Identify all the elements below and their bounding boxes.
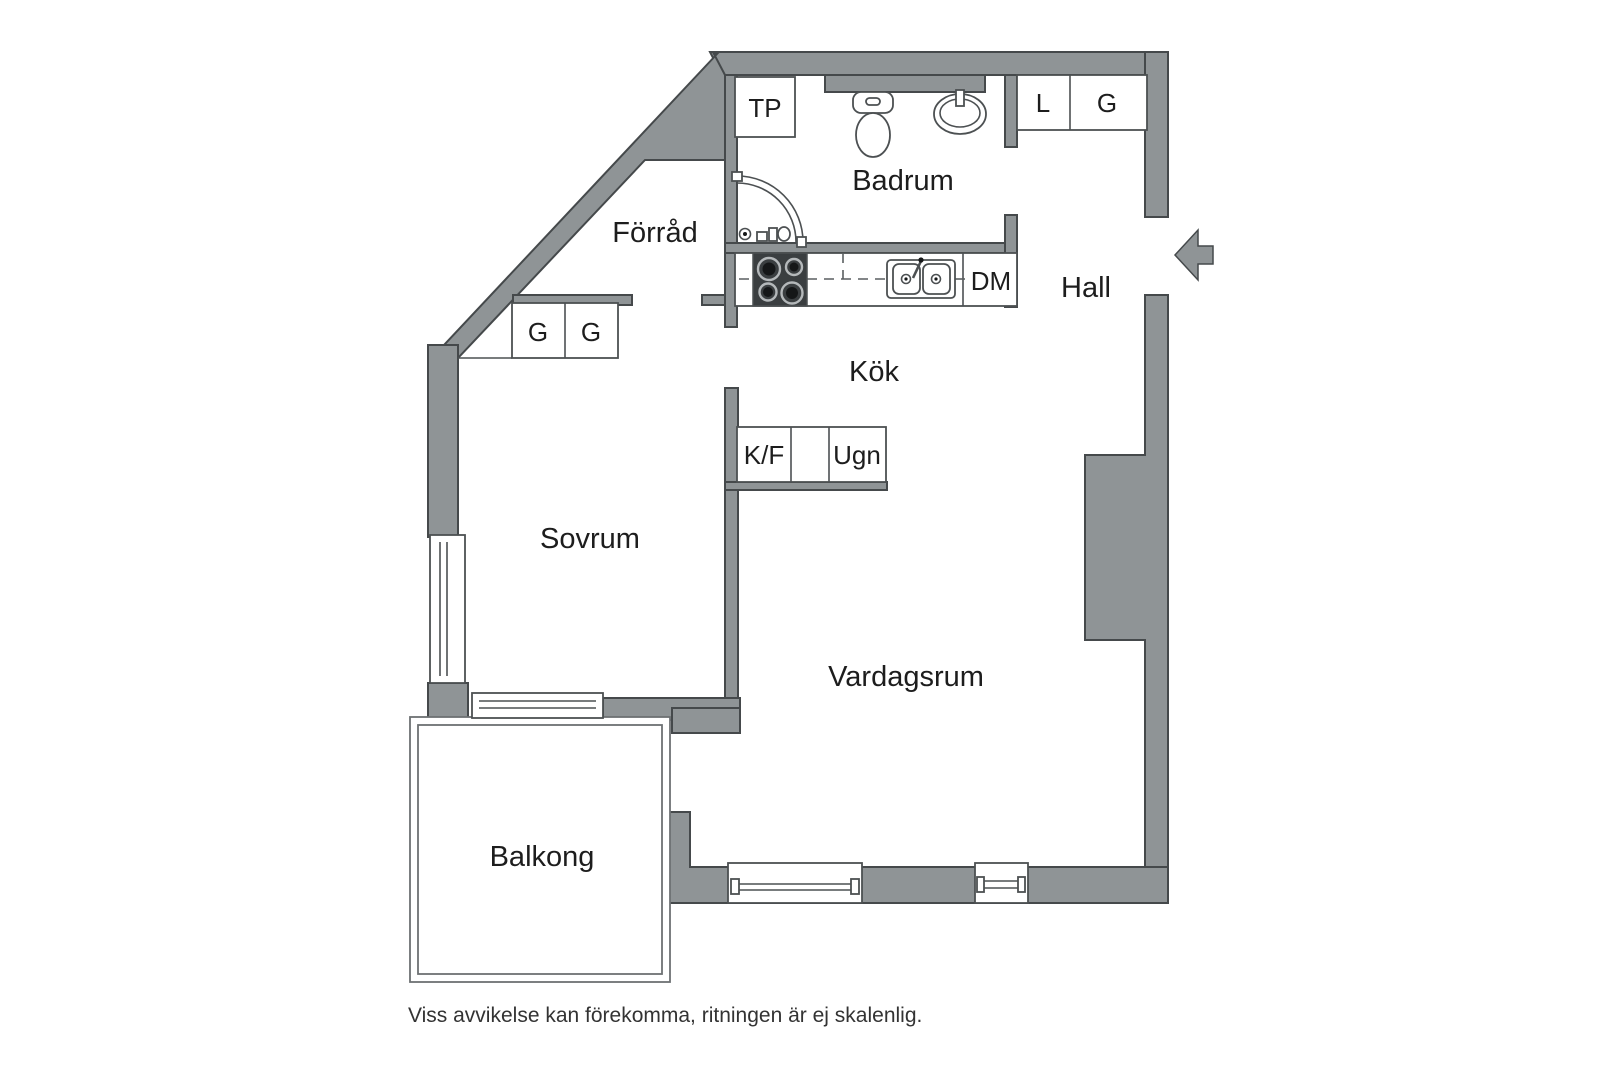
disclaimer-text: Viss avvikelse kan förekomma, ritningen … (408, 1004, 922, 1027)
appliance-label-g-sovrum-1: G (528, 317, 548, 347)
wall-stub-forrad-door (702, 295, 725, 305)
toilet-icon (853, 92, 893, 157)
wall-corner-step (672, 708, 740, 733)
appliance-label-dm: DM (971, 266, 1011, 296)
floor-plan-page: Förråd Badrum Hall Kök Sovrum Vardagsrum… (0, 0, 1620, 1080)
wall-left-lower (428, 683, 468, 720)
window-vardagsrum-small (975, 863, 1028, 903)
wall-left-upper (428, 345, 458, 537)
stove-icon (753, 253, 807, 306)
wall-right-lower (1085, 295, 1168, 903)
entrance-arrow-icon (1175, 230, 1213, 280)
floor-plan-drawing: Förråd Badrum Hall Kök Sovrum Vardagsrum… (0, 0, 1620, 1080)
window-sovrum-west (430, 535, 465, 683)
window-vardagsrum-large (728, 863, 862, 903)
appliance-label-g-sovrum-2: G (581, 317, 601, 347)
room-label-badrum: Badrum (852, 165, 954, 197)
room-label-kok: Kök (849, 356, 899, 388)
wall-right-upper (1145, 52, 1168, 217)
wall-top (710, 52, 1168, 75)
kitchen-sink-icon (887, 257, 955, 298)
room-label-balkong: Balkong (490, 841, 595, 873)
appliance-label-kf: K/F (744, 440, 784, 470)
window-balcony-door (472, 693, 603, 718)
room-label-sovrum: Sovrum (540, 523, 640, 555)
wall-divider-lower (725, 388, 738, 698)
room-label-forrad: Förråd (612, 217, 697, 249)
appliance-label-l: L (1036, 88, 1050, 118)
wall-badrum-bottom (725, 243, 1017, 253)
appliance-label-tp: TP (748, 93, 781, 123)
room-label-hall: Hall (1061, 272, 1111, 304)
appliance-label-g-hall: G (1097, 88, 1117, 118)
washbasin-icon (934, 90, 986, 134)
room-label-vardagsrum: Vardagsrum (828, 661, 984, 693)
shower-icon (732, 172, 806, 247)
appliance-label-ugn: Ugn (833, 440, 881, 470)
wall-badrum-right (1005, 75, 1017, 147)
wall-kf-bottom (725, 482, 887, 490)
